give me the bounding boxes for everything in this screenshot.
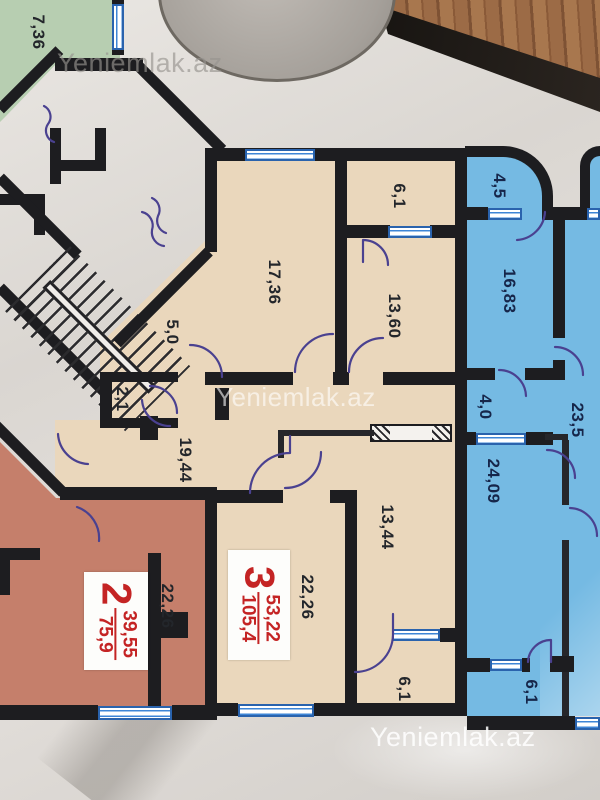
wall (217, 490, 283, 503)
unit-living-area: 53,22 (258, 592, 282, 644)
partition-wall (562, 540, 569, 658)
wall (550, 207, 587, 220)
window (238, 704, 314, 717)
partition-wall (278, 430, 284, 458)
window (388, 226, 432, 238)
wall (0, 548, 40, 560)
room-area-label: 6,1 (389, 183, 409, 208)
room-area-label: 4,5 (489, 173, 509, 198)
wall (467, 432, 476, 445)
partition-wall (562, 672, 569, 716)
apartment-2-unit-badge-content: 2 39,55 75,9 (94, 582, 139, 660)
wall (205, 148, 217, 252)
unit-total-area: 75,9 (94, 616, 115, 653)
room-area-label: 2,1 (112, 386, 132, 411)
background-object (158, 0, 396, 82)
partition-wall (278, 430, 374, 436)
window (392, 629, 440, 641)
wall (467, 207, 488, 220)
wall (335, 225, 390, 238)
window (575, 717, 600, 730)
apartment-3-unit-badge-content: 3 53,22 105,4 (237, 566, 282, 644)
wall (333, 372, 349, 385)
window (488, 208, 522, 220)
wall (172, 705, 217, 720)
wall (55, 58, 143, 71)
wall (467, 716, 575, 730)
wall (205, 372, 293, 385)
wall (522, 658, 530, 672)
room-area-label: 13,44 (377, 504, 397, 549)
wall (335, 161, 347, 383)
shaft-hatch (372, 426, 390, 440)
wall (0, 705, 98, 720)
wall (314, 703, 467, 716)
room-area-label: 7,36 (28, 14, 48, 49)
opening-squiggle (152, 198, 166, 233)
unit-total-area: 105,4 (237, 594, 258, 642)
floorplan-photo: 7,36 6,1 17,36 13,60 5,0 2,1 19,44 13,44… (0, 0, 600, 800)
unit-living-area: 39,55 (115, 608, 139, 660)
window (476, 433, 526, 445)
apartment-2-unit-badge: 2 39,55 75,9 (84, 572, 148, 670)
room-area-label: 23,5 (567, 402, 587, 437)
window (245, 149, 315, 161)
room-area-label: 13,60 (384, 293, 404, 338)
window (587, 208, 600, 220)
wall (383, 372, 455, 385)
window (98, 706, 172, 720)
window (112, 4, 124, 50)
room-area-label: 4,0 (475, 394, 495, 419)
wall (467, 658, 490, 672)
window (490, 659, 522, 671)
room-area-label: 17,36 (264, 259, 284, 304)
room-area-label: 24,09 (483, 458, 503, 503)
wall-pillar (550, 656, 574, 672)
apartment-3-unit-badge: 3 53,22 105,4 (228, 550, 290, 660)
wall (525, 368, 565, 380)
wall (467, 368, 495, 380)
room-area-label: 6,1 (521, 679, 541, 704)
photo-glare-blue (540, 560, 600, 720)
wall (100, 418, 178, 428)
wall (345, 490, 357, 628)
room-area-label: 22,26 (297, 574, 317, 619)
wall (0, 560, 10, 595)
opening-squiggle (142, 212, 164, 246)
wall (205, 490, 217, 716)
room-area-label: 22,26 (157, 583, 177, 628)
shaft-hatch (432, 426, 450, 440)
partition-wall (562, 440, 569, 505)
elevator-shaft-wall (95, 128, 106, 171)
unit-number: 3 (238, 566, 280, 589)
room-area-label: 16,83 (499, 268, 519, 313)
wall-pillar (215, 388, 229, 420)
ventilation-shaft (370, 424, 452, 442)
wall-diagonal (132, 60, 226, 154)
wall (553, 220, 565, 338)
room-area-label: 5,0 (162, 319, 182, 344)
room-area-label: 19,44 (175, 437, 195, 482)
wall (60, 487, 217, 500)
unit-number: 2 (95, 582, 137, 605)
elevator-shaft-wall (50, 128, 61, 184)
wall (455, 148, 467, 716)
room-area-label: 6,1 (394, 676, 414, 701)
